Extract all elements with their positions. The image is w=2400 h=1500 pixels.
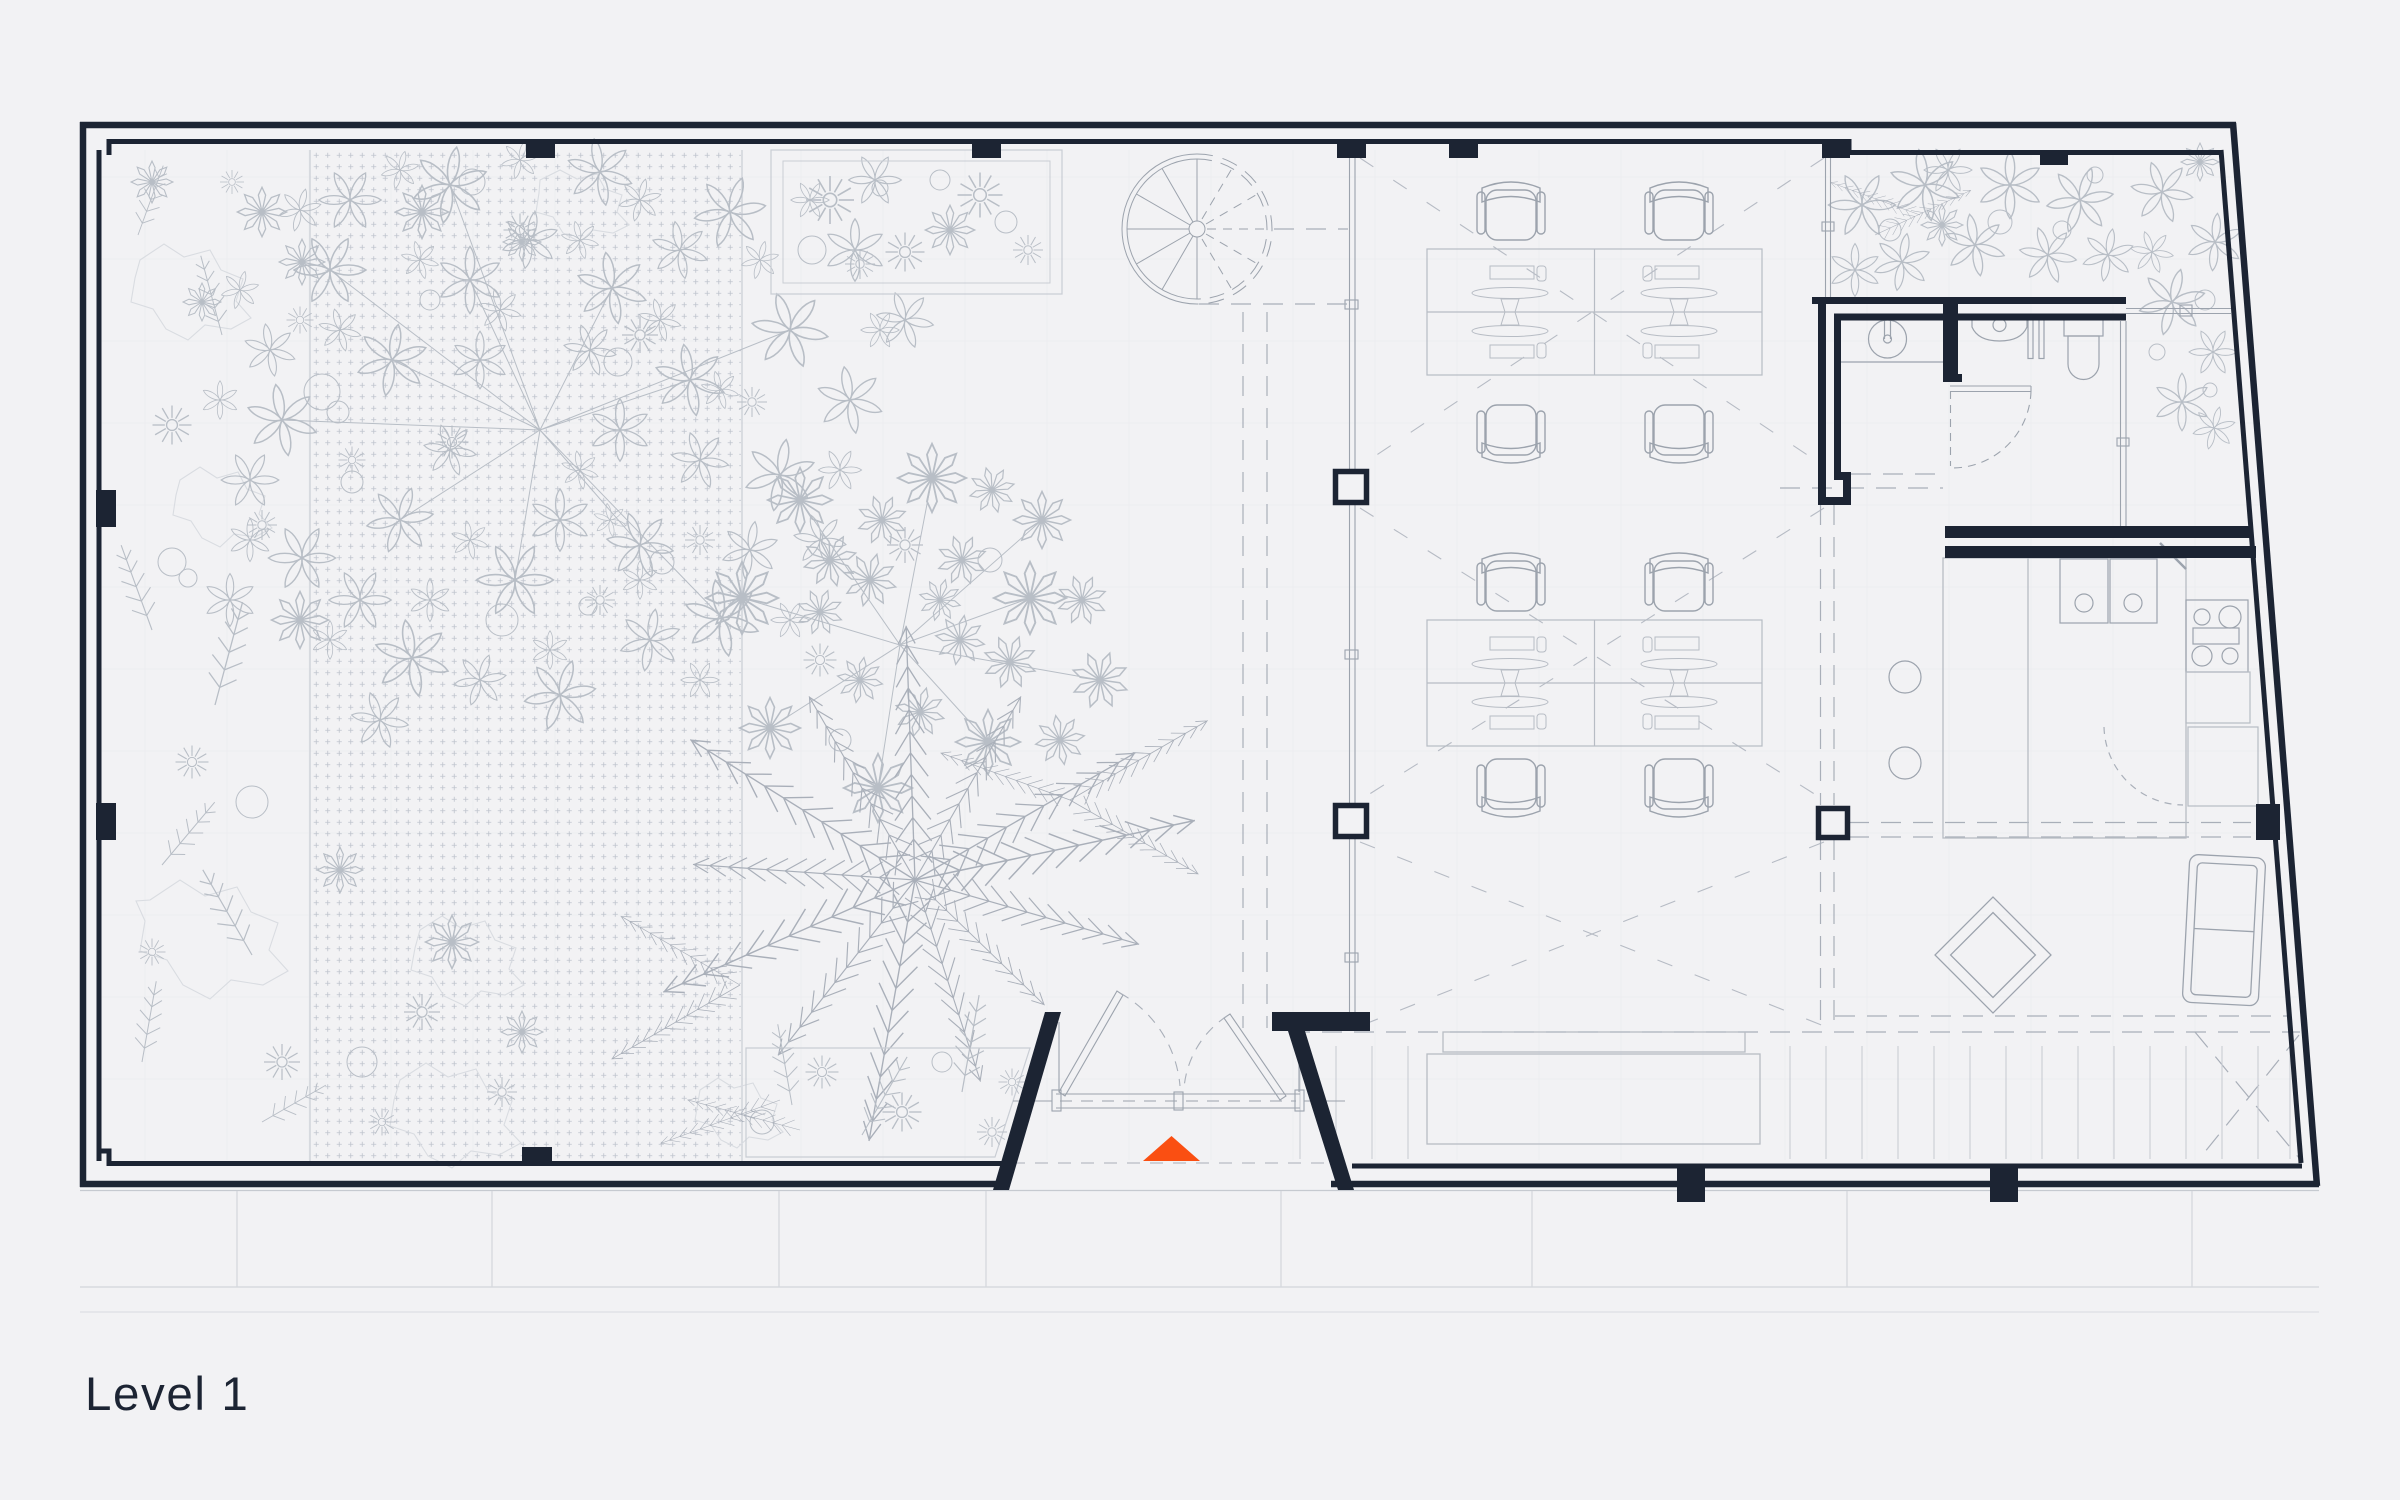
svg-text:Level 1: Level 1 bbox=[85, 1368, 249, 1421]
